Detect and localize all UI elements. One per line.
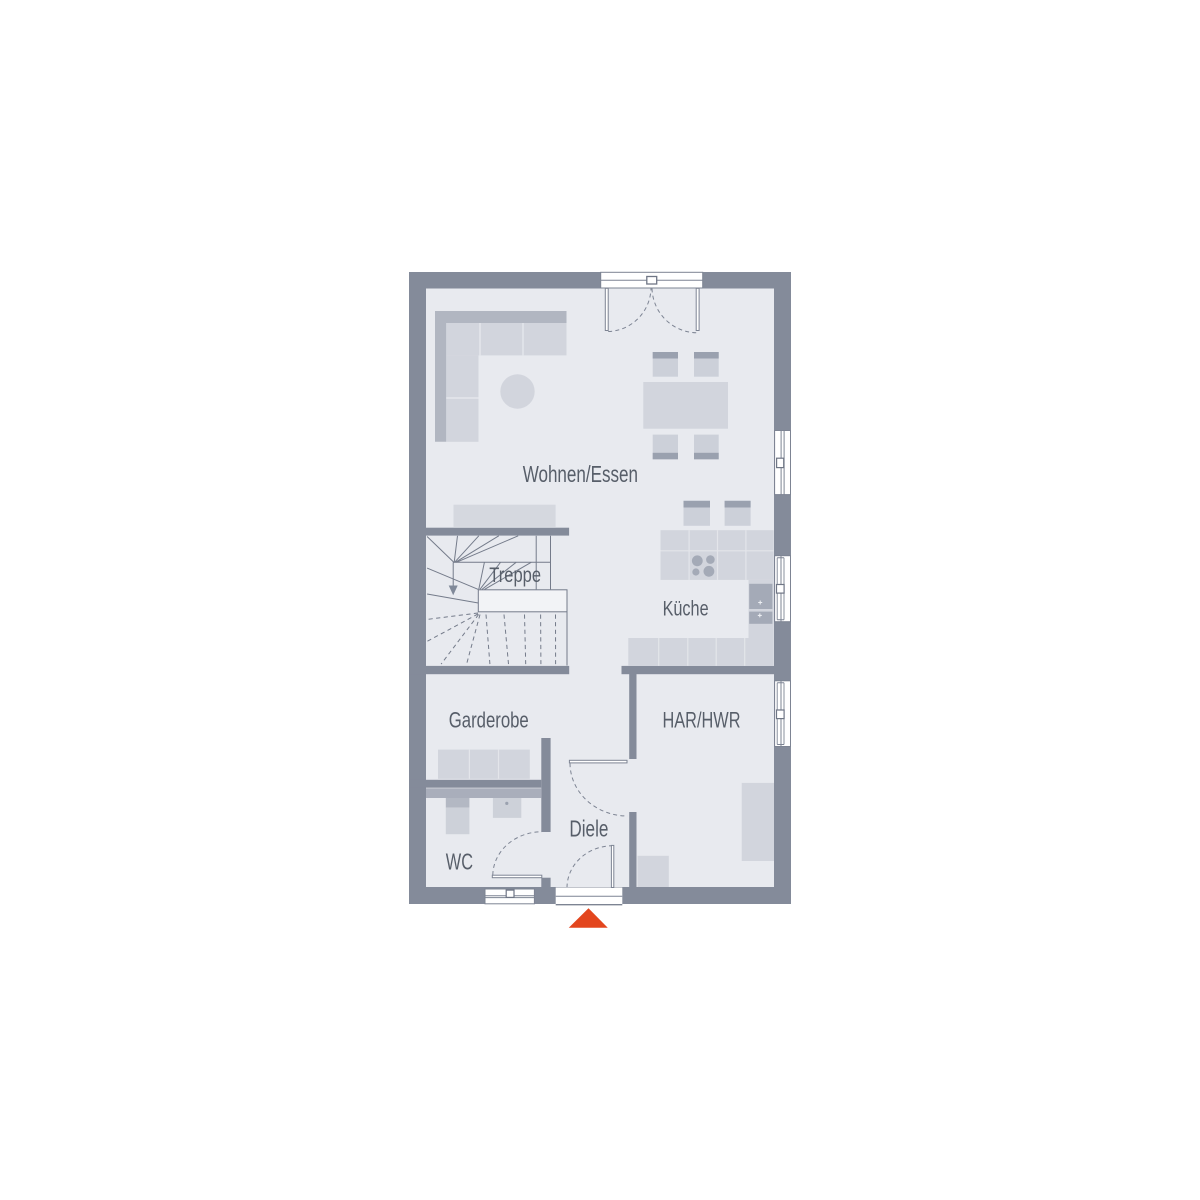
svg-text:Küche: Küche <box>663 595 709 620</box>
svg-text:Diele: Diele <box>569 815 608 841</box>
svg-text:Treppe: Treppe <box>489 563 541 587</box>
svg-text:HAR/HWR: HAR/HWR <box>663 707 741 732</box>
svg-text:Wohnen/Essen: Wohnen/Essen <box>523 461 638 487</box>
svg-text:Garderobe: Garderobe <box>449 707 529 732</box>
svg-text:WC: WC <box>446 849 473 875</box>
